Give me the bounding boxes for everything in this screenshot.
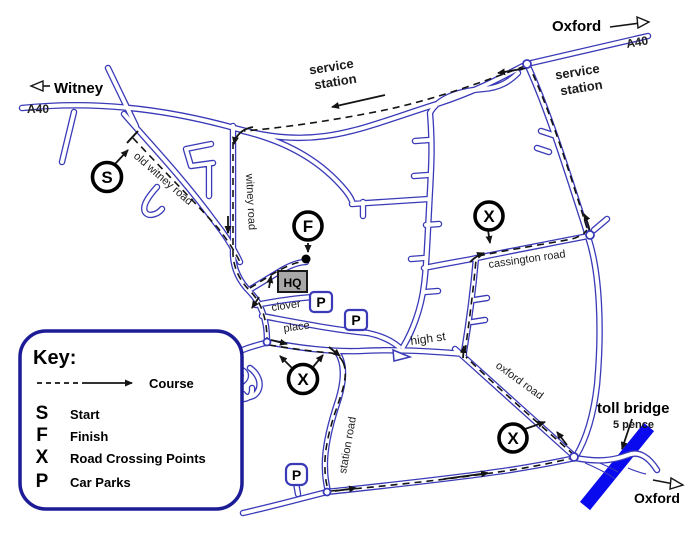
crossing-letter: X xyxy=(297,370,309,389)
key-start-label: Start xyxy=(70,407,100,422)
witney-arrow-icon xyxy=(31,81,43,91)
start-marker: S xyxy=(93,163,122,192)
roundabout xyxy=(264,339,271,346)
course-map-page: HQ P P P S F X X X Witney A40 Oxford xyxy=(0,0,700,533)
oxford-road-label: oxford road xyxy=(493,360,545,402)
car-park-marker: P xyxy=(345,310,367,330)
finish-letter: F xyxy=(303,217,313,236)
key-course-label: Course xyxy=(149,376,194,391)
course-arrow xyxy=(332,95,385,107)
map-key: Key: Course S Start F Finish X Road Cros… xyxy=(20,331,242,509)
witney-road-label: witney road xyxy=(243,173,258,231)
car-park-letter: P xyxy=(351,312,360,328)
roundabout xyxy=(570,453,578,461)
high-st-label: high st xyxy=(409,329,447,348)
river-bank-line xyxy=(628,468,646,474)
car-park-letter: P xyxy=(316,294,325,310)
finish-marker: F xyxy=(294,212,322,240)
station-road-label: station road xyxy=(337,416,359,475)
toll-bridge-price: 5 pence xyxy=(613,419,654,431)
hq-building: HQ xyxy=(278,271,307,292)
finish-dot xyxy=(302,255,311,264)
car-park-marker: P xyxy=(310,292,332,312)
witney-label: Witney xyxy=(54,80,104,97)
oxford-top-arrow-icon xyxy=(637,17,649,28)
oxford-bottom-arrow-icon xyxy=(670,478,683,489)
crossing-marker: X xyxy=(499,424,527,452)
clover-place-label: place xyxy=(283,319,311,335)
crossing-letter: X xyxy=(483,207,495,226)
crossing-pointer-arrow xyxy=(313,355,323,367)
key-finish-symbol: F xyxy=(36,425,48,446)
crossing-marker: X xyxy=(289,365,318,394)
oxford-bottom-label: Oxford xyxy=(634,490,680,506)
crossing-pointer-arrow xyxy=(280,356,292,368)
course-map: HQ P P P S F X X X Witney A40 Oxford xyxy=(0,0,700,533)
a40-left-label: A40 xyxy=(27,102,49,116)
key-crossing-symbol: X xyxy=(36,447,49,468)
key-crossing-label: Road Crossing Points xyxy=(70,451,206,466)
start-letter: S xyxy=(101,168,112,187)
oxford-top-arrow-line xyxy=(610,23,640,27)
key-carpark-label: Car Parks xyxy=(70,475,131,490)
crossing-marker: X xyxy=(475,202,503,230)
oxford-top-label: Oxford xyxy=(552,18,601,35)
crossing-pointer-arrow xyxy=(488,230,490,243)
roundabout xyxy=(523,60,531,68)
car-park-letter: P xyxy=(292,467,301,483)
car-park-marker: P xyxy=(286,464,307,485)
roundabout xyxy=(324,489,331,496)
crossing-letter: X xyxy=(507,429,519,448)
toll-bridge-label: toll bridge xyxy=(597,400,670,417)
key-title: Key: xyxy=(33,347,76,369)
key-carpark-symbol: P xyxy=(36,471,49,492)
key-finish-label: Finish xyxy=(70,429,108,444)
roundabout xyxy=(586,231,594,239)
a40-top-right-label: A40 xyxy=(625,33,649,51)
course-arrow xyxy=(463,346,464,358)
key-start-symbol: S xyxy=(36,403,49,424)
hq-label: HQ xyxy=(284,276,302,290)
start-pointer-arrow xyxy=(115,150,128,164)
